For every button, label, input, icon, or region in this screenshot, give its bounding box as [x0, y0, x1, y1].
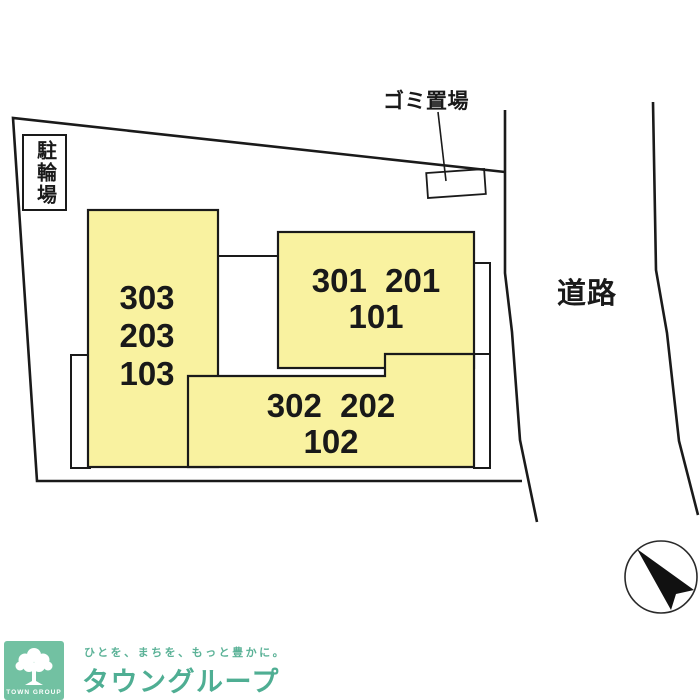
room-number: 301 201 — [278, 263, 474, 299]
garbage-area-outline — [426, 169, 486, 198]
garbage-area-label: ゴミ置場 — [383, 85, 469, 115]
logo-brand-name: タウングループ — [82, 660, 280, 699]
tree-icon — [12, 645, 56, 687]
building-left-room-numbers: 303 203 103 — [84, 279, 210, 393]
room-number: 303 — [84, 279, 210, 317]
room-number: 203 — [84, 317, 210, 355]
road-edge-line-right — [653, 102, 698, 515]
road-edge-line-left — [505, 110, 537, 522]
road-label: 道路 — [557, 270, 617, 312]
room-number: 101 — [278, 299, 474, 335]
room-number: 302 202 — [188, 388, 474, 424]
logo-tagline: ひとを、まちを、もっと豊かに。 — [84, 644, 286, 660]
town-group-badge: TOWN GROUP — [4, 641, 64, 700]
garbage-leader-line — [438, 112, 446, 181]
north-arrow-icon — [637, 549, 694, 610]
annex-outline-right — [474, 263, 490, 468]
building-lower-room-numbers: 302 202 102 — [188, 388, 474, 460]
town-group-logo: TOWN GROUP ひとを、まちを、もっと豊かに。 タウングループ — [0, 636, 340, 700]
bicycle-parking-label: 駐輪場 — [35, 140, 55, 206]
town-group-badge-text: TOWN GROUP — [6, 689, 61, 696]
building-upper-right-room-numbers: 301 201 101 — [278, 263, 474, 335]
site-plan-page: 駐輪場 ゴミ置場 道路 303 203 103 301 201 101 302 … — [0, 0, 700, 700]
bicycle-parking-box: 駐輪場 — [22, 134, 67, 211]
room-number: 102 — [188, 424, 474, 460]
